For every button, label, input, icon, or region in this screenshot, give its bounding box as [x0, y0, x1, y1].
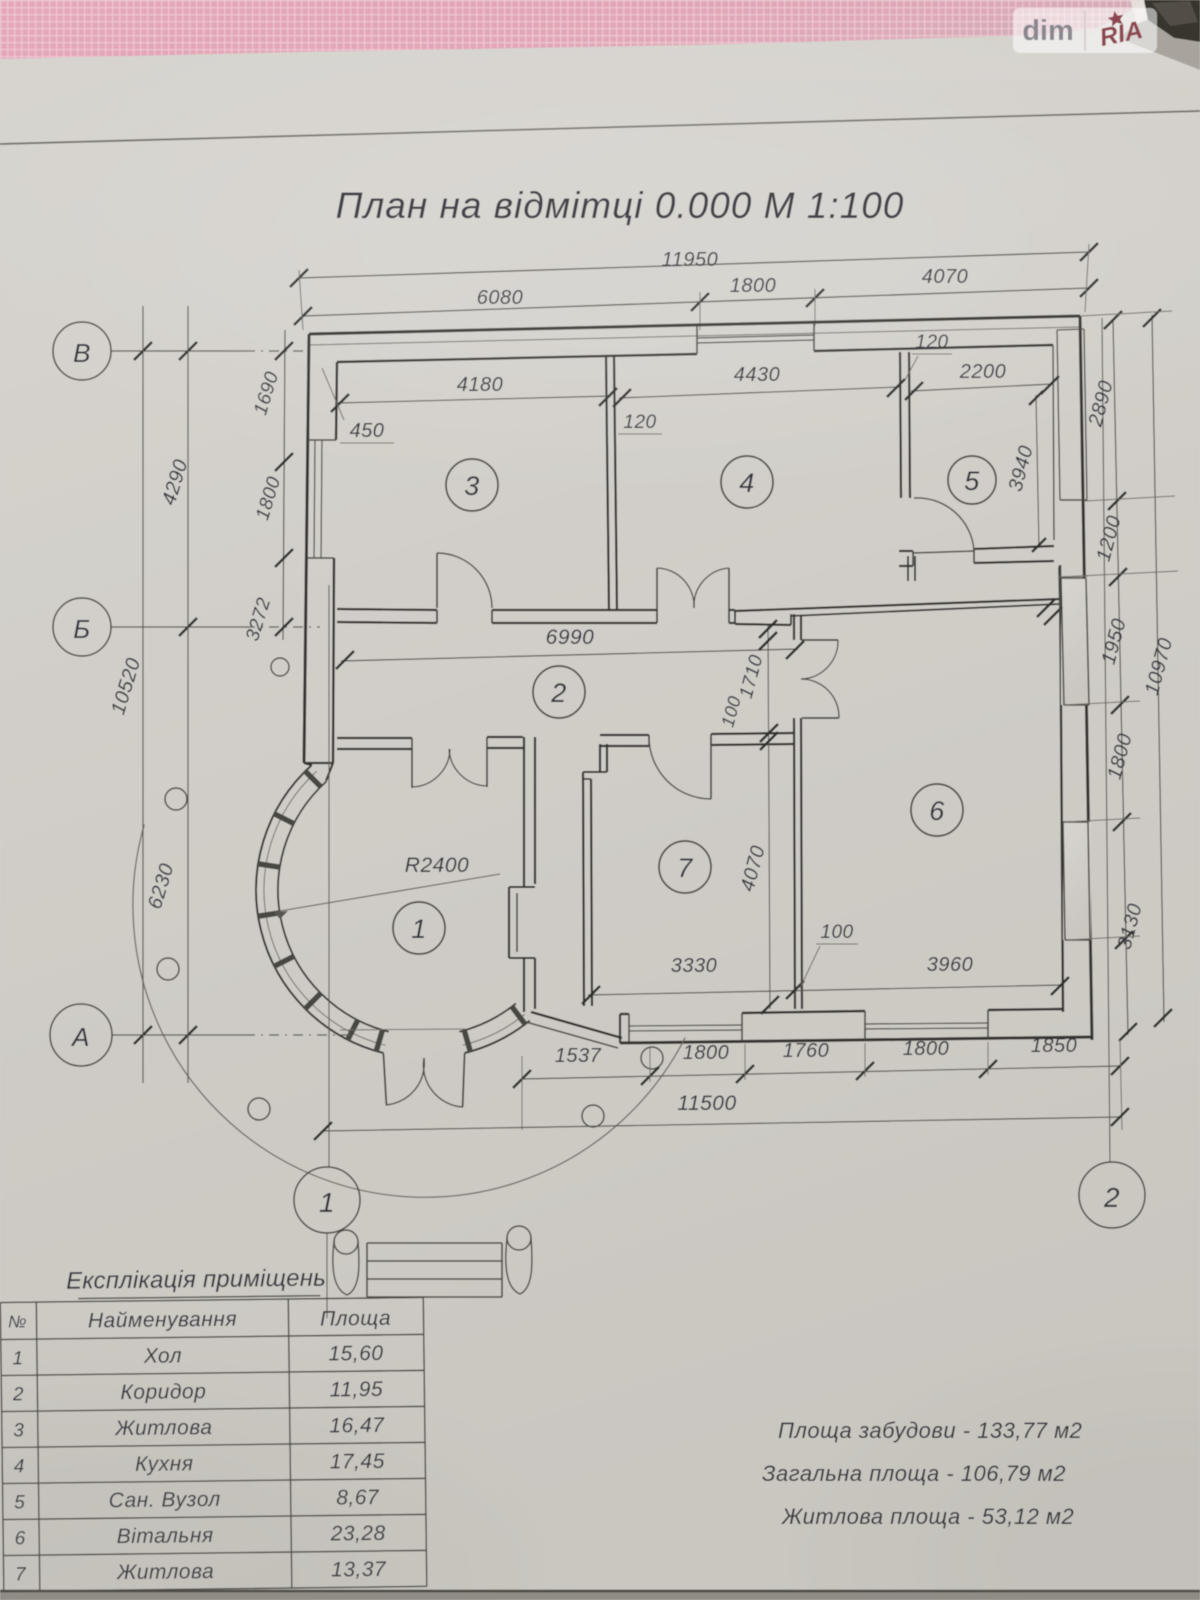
svg-text:2: 2 — [1103, 1182, 1120, 1213]
svg-text:Площа забудови - 133,77 м2: Площа забудови - 133,77 м2 — [778, 1418, 1082, 1443]
svg-text:3960: 3960 — [927, 954, 974, 976]
svg-text:Експлікація приміщень: Експлікація приміщень — [66, 1265, 326, 1295]
svg-text:Площа: Площа — [320, 1307, 391, 1331]
svg-text:6990: 6990 — [546, 626, 595, 649]
svg-text:1760: 1760 — [783, 1040, 830, 1062]
svg-text:6: 6 — [929, 796, 945, 826]
svg-text:7: 7 — [677, 853, 693, 883]
svg-text:2: 2 — [550, 678, 567, 708]
svg-text:1: 1 — [411, 914, 427, 944]
svg-text:1850: 1850 — [1031, 1035, 1078, 1057]
svg-text:11500: 11500 — [677, 1092, 736, 1115]
svg-text:А: А — [70, 1022, 90, 1052]
svg-text:Загальна площа - 106,79 м2: Загальна площа - 106,79 м2 — [762, 1461, 1066, 1486]
svg-text:1: 1 — [319, 1187, 335, 1218]
svg-text:1800: 1800 — [683, 1042, 730, 1064]
svg-text:5: 5 — [964, 466, 980, 496]
svg-text:Б: Б — [73, 614, 90, 644]
svg-text:1800: 1800 — [903, 1038, 950, 1060]
svg-text:Житлова площа - 53,12 м2: Житлова площа - 53,12 м2 — [781, 1504, 1074, 1529]
svg-text:3330: 3330 — [671, 955, 718, 977]
svg-text:R2400: R2400 — [405, 854, 469, 877]
svg-text:100: 100 — [820, 922, 853, 943]
svg-text:1537: 1537 — [555, 1045, 602, 1067]
